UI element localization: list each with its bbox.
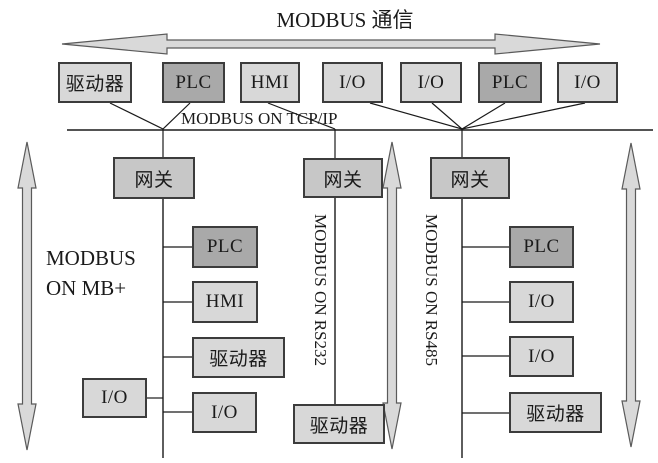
right-vertical-double-arrow-icon	[622, 143, 640, 447]
node-hmi-left: HMI	[192, 281, 258, 323]
horizontal-double-arrow-icon	[62, 34, 600, 54]
left-vertical-double-arrow-icon	[18, 142, 36, 450]
tcpip-bus-label: MODBUS ON TCP/IP	[181, 109, 338, 129]
node-io-left-2: I/O	[192, 392, 257, 433]
gateway-left: 网关	[113, 157, 195, 199]
node-plc-top-1: PLC	[162, 62, 225, 103]
gateway-middle: 网关	[303, 158, 383, 198]
node-plc-top-2: PLC	[478, 62, 542, 103]
node-io-left-1: I/O	[82, 378, 147, 418]
node-io-top-1: I/O	[322, 62, 383, 103]
right-branch-label: MODBUS ON RS485	[419, 198, 443, 382]
left-branch-label: MODBUS ON MB+	[46, 244, 166, 304]
middle-vertical-double-arrow-icon	[383, 142, 401, 449]
diagram-title: MODBUS 通信	[180, 4, 510, 34]
node-driver-right: 驱动器	[509, 392, 602, 433]
node-driver-middle: 驱动器	[293, 404, 385, 444]
node-driver-top: 驱动器	[58, 62, 132, 103]
node-driver-left: 驱动器	[192, 337, 285, 378]
node-hmi-top: HMI	[240, 62, 300, 103]
node-io-top-3: I/O	[557, 62, 618, 103]
node-plc-left: PLC	[192, 226, 258, 268]
node-io-top-2: I/O	[400, 62, 462, 103]
node-plc-right: PLC	[509, 226, 574, 268]
gateway-right: 网关	[430, 157, 510, 199]
node-io-right-1: I/O	[509, 281, 574, 323]
node-io-right-2: I/O	[509, 336, 574, 377]
middle-branch-label: MODBUS ON RS232	[308, 198, 332, 382]
modbus-network-diagram: MODBUS 通信 MODBUS ON TCP/IP MODBUS ON MB+…	[0, 0, 658, 463]
